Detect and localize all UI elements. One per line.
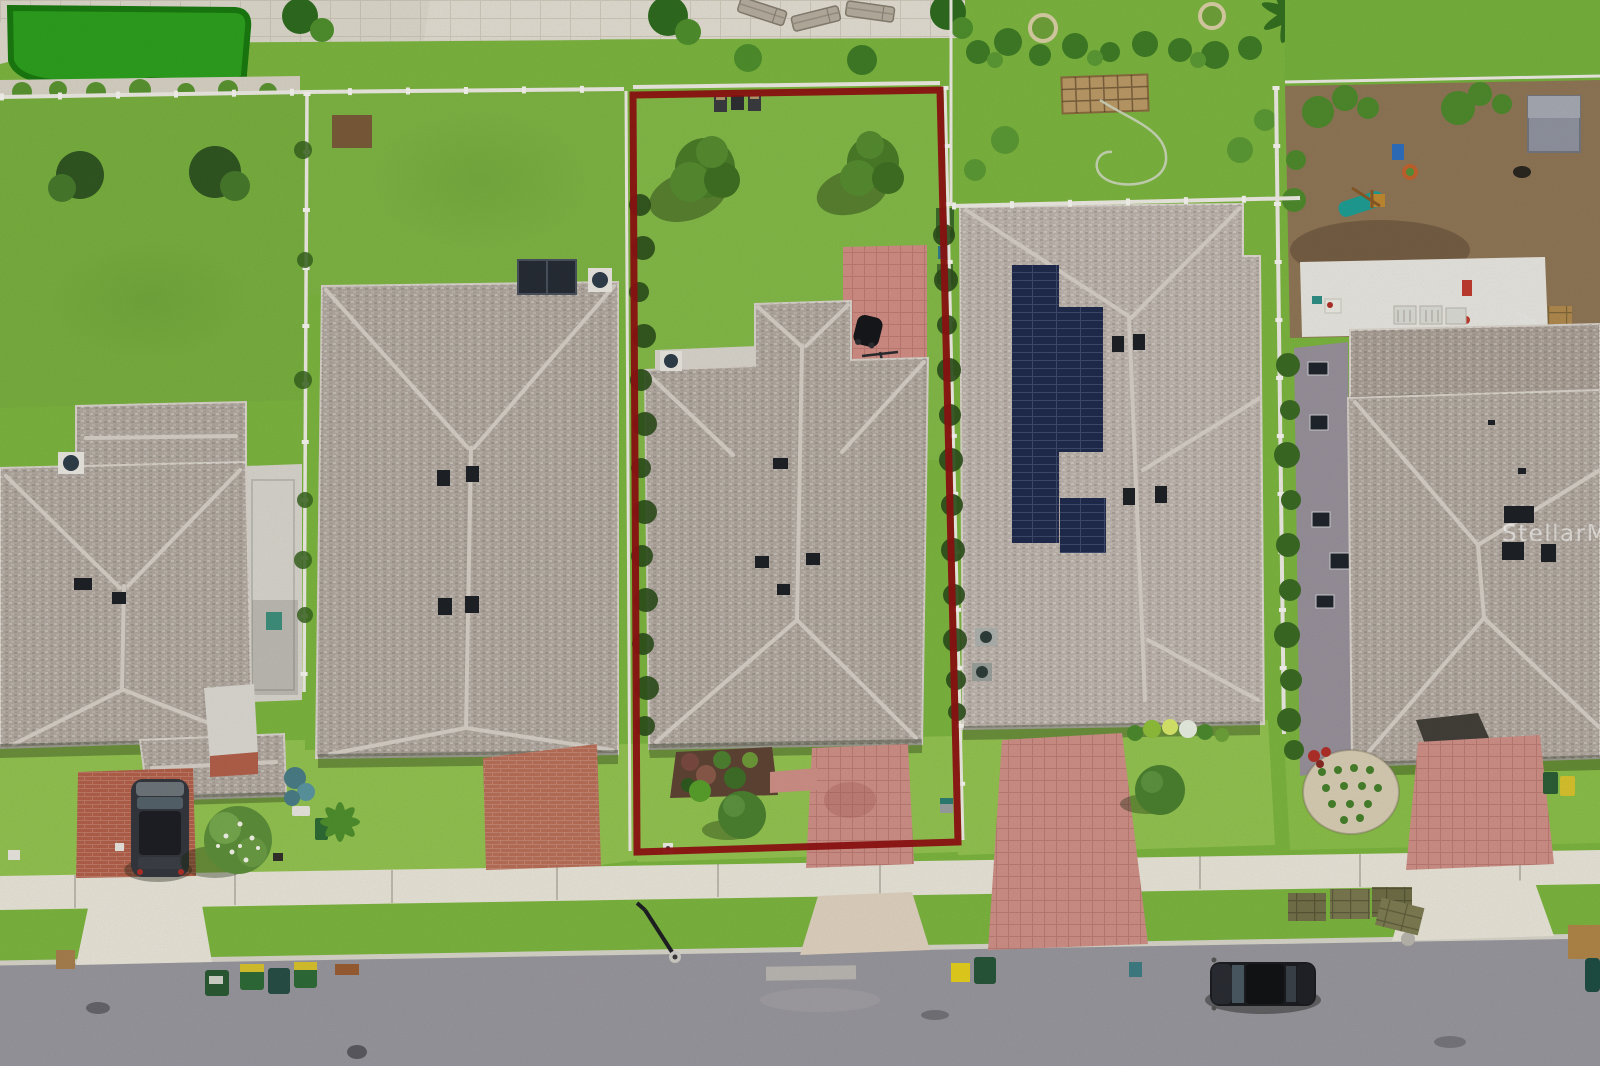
aerial-photo: StellarMLS bbox=[0, 0, 1600, 1066]
aerial-scene: StellarMLS bbox=[0, 0, 1600, 1066]
mls-watermark: StellarMLS bbox=[1502, 521, 1600, 547]
photo-grain bbox=[0, 0, 1600, 1066]
